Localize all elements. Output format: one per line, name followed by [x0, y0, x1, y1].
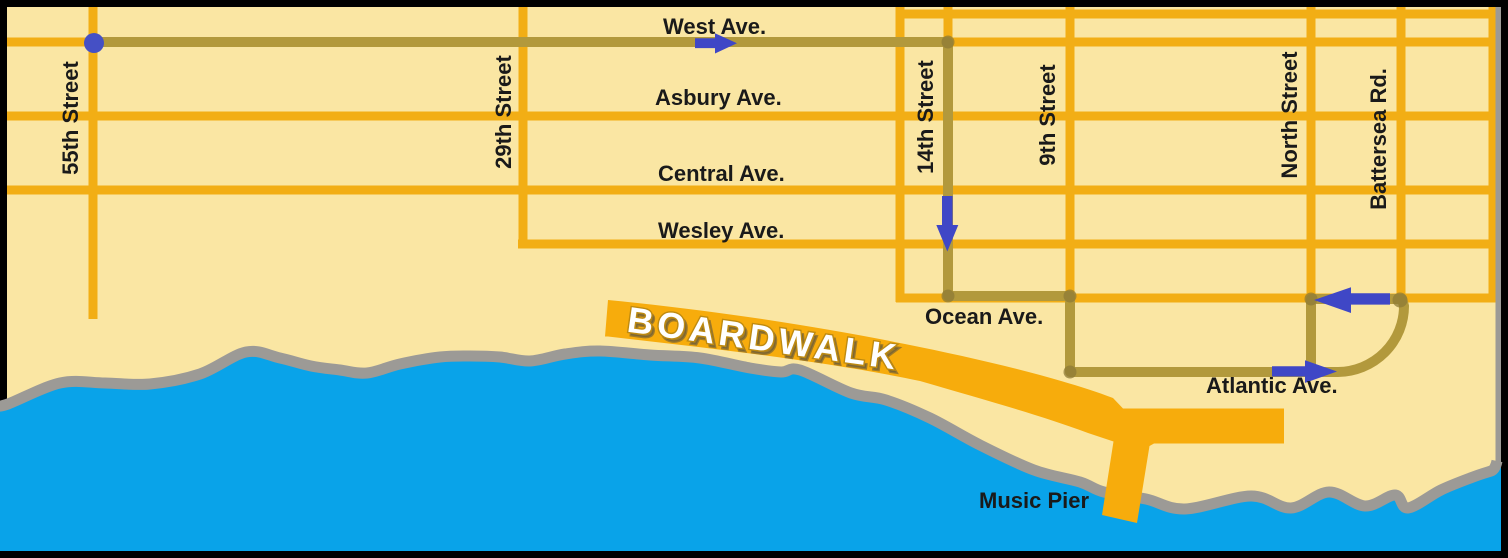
svg-text:9th Street: 9th Street [1035, 64, 1060, 166]
svg-text:Battersea Rd.: Battersea Rd. [1366, 68, 1391, 210]
svg-text:Central Ave.: Central Ave. [658, 161, 785, 186]
svg-text:Wesley Ave.: Wesley Ave. [658, 218, 784, 243]
svg-text:West Ave.: West Ave. [663, 14, 766, 39]
svg-text:Atlantic Ave.: Atlantic Ave. [1206, 373, 1338, 398]
svg-text:North Street: North Street [1277, 51, 1302, 179]
svg-text:14th Street: 14th Street [913, 59, 938, 173]
svg-text:29th Street: 29th Street [491, 54, 516, 168]
svg-text:Asbury Ave.: Asbury Ave. [655, 85, 782, 110]
svg-text:Music Pier: Music Pier [979, 488, 1089, 513]
svg-text:Ocean Ave.: Ocean Ave. [925, 304, 1043, 329]
svg-text:55th Street: 55th Street [58, 60, 83, 174]
